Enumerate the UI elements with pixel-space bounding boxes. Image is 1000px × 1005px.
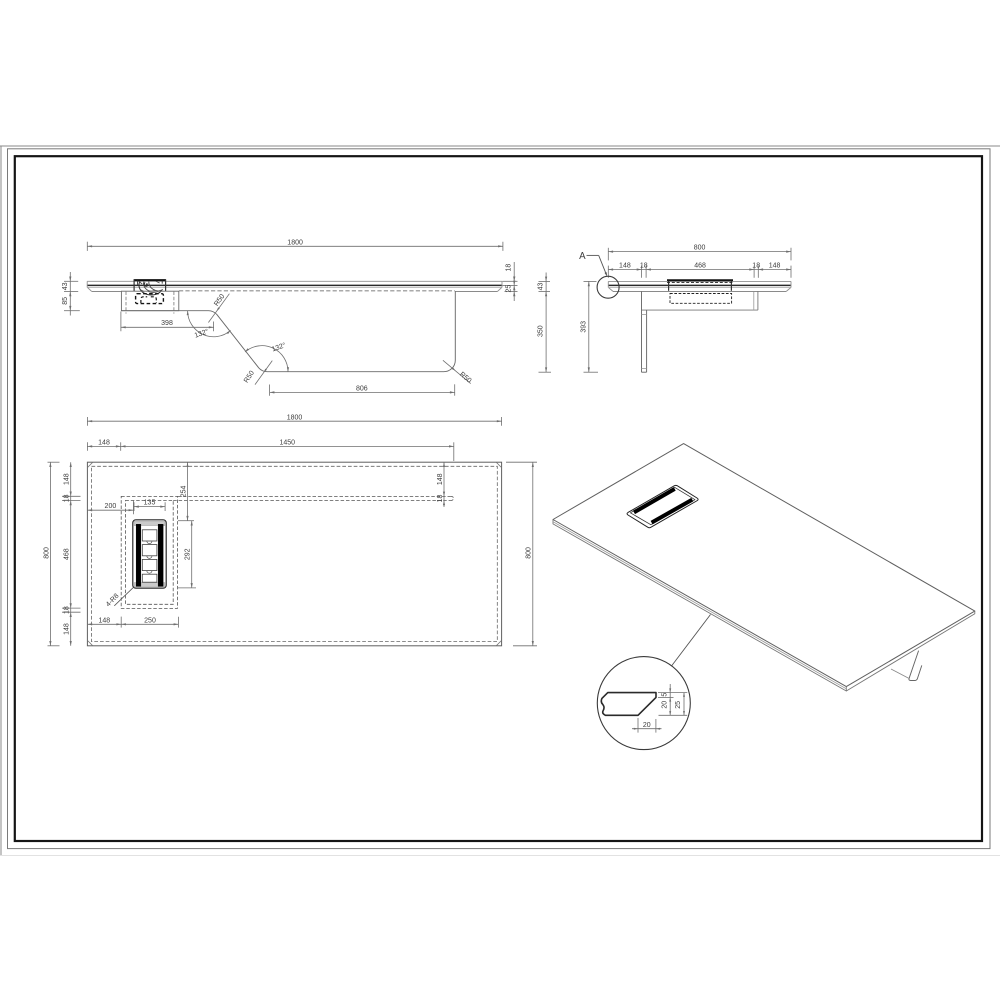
svg-text:43: 43 [538,283,545,291]
svg-text:468: 468 [64,548,71,560]
svg-text:25: 25 [675,701,682,709]
svg-text:85: 85 [62,297,69,305]
svg-text:135: 135 [144,500,156,507]
svg-text:18: 18 [64,494,71,502]
svg-text:20: 20 [661,701,668,709]
svg-text:18: 18 [437,495,444,503]
svg-text:1450: 1450 [280,439,296,446]
svg-text:800: 800 [43,547,50,559]
svg-text:5: 5 [662,693,669,697]
svg-text:292: 292 [185,548,192,560]
svg-text:43: 43 [62,282,69,290]
svg-text:200: 200 [105,503,117,510]
svg-text:800: 800 [694,245,706,252]
svg-text:148: 148 [64,623,71,635]
svg-text:806: 806 [356,386,368,393]
svg-text:18: 18 [64,606,71,614]
svg-text:18: 18 [505,264,512,272]
svg-text:20: 20 [643,722,651,729]
svg-text:1800: 1800 [287,415,303,422]
svg-text:393: 393 [581,321,588,333]
svg-text:250: 250 [144,617,156,624]
svg-text:148: 148 [98,439,110,446]
svg-text:468: 468 [694,262,706,269]
svg-text:148: 148 [64,473,71,485]
svg-text:800: 800 [526,547,533,559]
svg-text:1800: 1800 [287,240,303,247]
svg-text:25: 25 [505,285,512,293]
svg-text:148: 148 [98,617,110,624]
svg-text:398: 398 [161,320,173,327]
svg-text:18: 18 [752,262,760,269]
svg-text:18: 18 [640,262,648,269]
svg-text:148: 148 [437,473,444,485]
svg-text:350: 350 [538,325,545,337]
svg-text:148: 148 [619,262,631,269]
svg-text:A: A [579,251,586,262]
svg-text:148: 148 [769,262,781,269]
svg-text:254: 254 [180,485,187,497]
